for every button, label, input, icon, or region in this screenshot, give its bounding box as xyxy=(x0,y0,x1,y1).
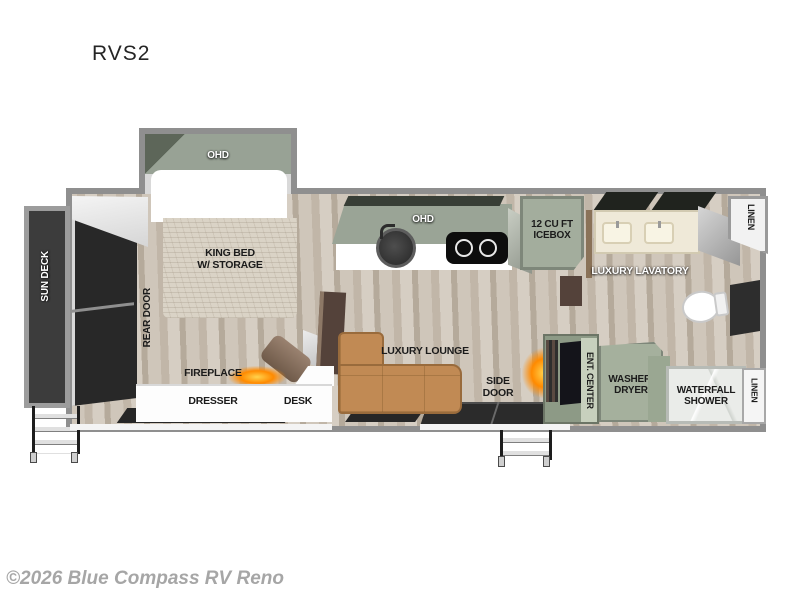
burner-icon xyxy=(455,239,473,257)
lavatory-label: LUXURY LAVATORY xyxy=(578,266,702,278)
toilet-tank-icon xyxy=(713,291,729,317)
side-door-sill xyxy=(420,424,570,430)
ent-center-label: ENT. CENTER xyxy=(584,352,594,409)
step-foot xyxy=(543,456,550,467)
rear-sill xyxy=(70,424,332,430)
linen-top-label: LINEN xyxy=(745,204,755,230)
page-title: RVS2 xyxy=(92,42,150,66)
bathroom-window xyxy=(730,280,760,336)
faucet-dot-icon xyxy=(616,221,619,228)
rear-door-label: REAR DOOR xyxy=(142,288,153,347)
faucet-icon xyxy=(380,224,395,239)
icebox: 12 CU FT ICEBOX xyxy=(520,196,584,270)
shower-label: WATERFALL SHOWER xyxy=(669,385,743,407)
linen-closet-bottom: LINEN xyxy=(742,368,766,424)
king-bed-pillows xyxy=(151,170,287,222)
king-bed: KING BED W/ STORAGE xyxy=(163,218,297,318)
side-door-label: SIDE DOOR xyxy=(474,376,522,399)
bath-pocket-door xyxy=(560,276,582,306)
dresser-label: DRESSER xyxy=(178,396,248,408)
tv-icon xyxy=(560,341,582,405)
rear-ladder xyxy=(32,406,80,454)
waterfall-shower: WATERFALL SHOWER xyxy=(666,366,746,424)
lounge-sofa xyxy=(338,364,462,414)
kitchen-window xyxy=(344,196,505,206)
ladder-foot xyxy=(30,452,37,463)
kitchen-ohd-label: OHD xyxy=(398,214,448,225)
toilet xyxy=(680,285,735,330)
ent-center-face: ENT. CENTER xyxy=(581,338,597,422)
king-bed-label: KING BED W/ STORAGE xyxy=(163,248,297,271)
burner-icon xyxy=(479,239,497,257)
sun-deck-label: SUN DECK xyxy=(40,251,51,302)
linen-bottom-label: LINEN xyxy=(749,378,758,403)
fireplace-label: FIREPLACE xyxy=(176,368,250,380)
floorplan-canvas: RVS2 SUN DECK REAR DOOR OHD KING BED W/ … xyxy=(0,0,800,600)
ent-center-slats xyxy=(546,340,558,402)
cooktop xyxy=(446,232,508,264)
faucet-dot-icon xyxy=(658,221,661,228)
icebox-label: 12 CU FT ICEBOX xyxy=(523,219,581,241)
ladder-foot xyxy=(71,452,78,463)
desk-label: DESK xyxy=(276,396,320,408)
bedroom-cabinet-corner xyxy=(145,134,185,174)
sun-deck: SUN DECK xyxy=(24,206,70,408)
step-foot xyxy=(498,456,505,467)
lounge-label: LUXURY LOUNGE xyxy=(380,346,470,358)
bedroom-ohd-label: OHD xyxy=(190,150,246,161)
watermark: ©2026 Blue Compass RV Reno xyxy=(6,568,284,590)
dresser-counter: DRESSER DESK xyxy=(136,384,332,422)
